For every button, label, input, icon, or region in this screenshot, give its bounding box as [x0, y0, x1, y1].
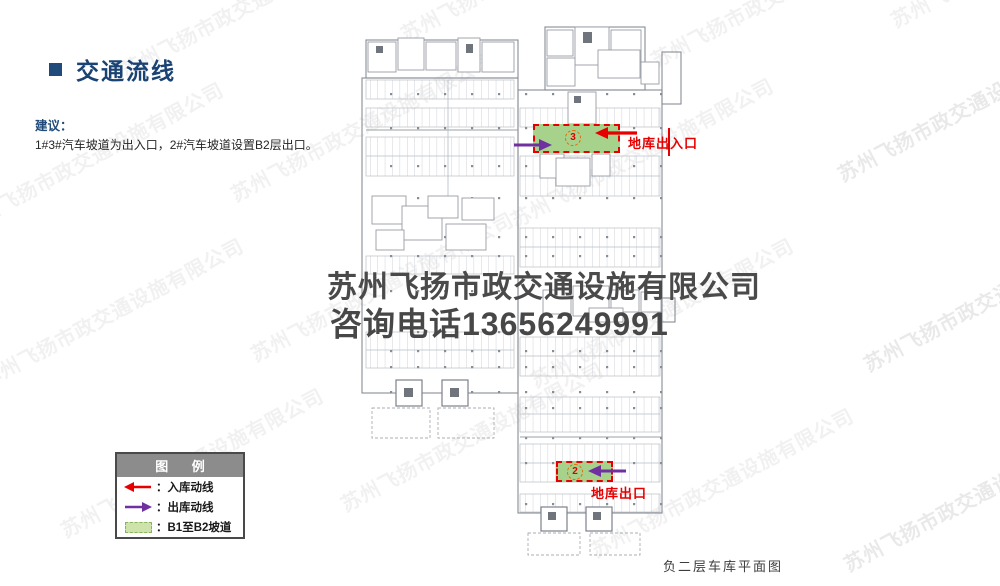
inbound-arrow-icon [123, 481, 153, 493]
outbound-arrow-icon [588, 464, 628, 478]
slide: 苏州飞扬市政交通设施有限公司 苏州飞扬市政交通设施有限公司 苏州飞扬市政交通设施… [0, 0, 1000, 586]
section-bullet-icon [49, 63, 62, 76]
suggestion-text: 1#3#汽车坡道为出入口，2#汽车坡道设置B2层出口。 [35, 136, 318, 153]
ramp-swatch-icon [123, 522, 153, 533]
legend-box: 图 例 ：入库动线 ：出库动线 ：B1至B2坡道 [115, 452, 245, 539]
outbound-arrow-icon [512, 138, 552, 152]
label-garage-entrance-exit: 地库出入口 [628, 133, 698, 152]
label-garage-exit: 地库出口 [591, 483, 647, 502]
legend-title: 图 例 [117, 454, 243, 477]
legend-item-outbound: ：出库动线 [117, 497, 243, 517]
ramp-2-number-badge: 2 [567, 464, 583, 480]
legend-item-label: ：入库动线 [156, 479, 214, 495]
legend-item-label: ：出库动线 [156, 499, 214, 515]
suggestion-label: 建议： [35, 115, 73, 134]
plan-caption: 负二层车库平面图 [663, 556, 783, 575]
page-title: 交通流线 [76, 52, 176, 86]
ramp-3-number-badge: 3 [565, 130, 581, 146]
legend-item-inbound: ：入库动线 [117, 477, 243, 497]
legend-item-ramp: ：B1至B2坡道 [117, 517, 243, 537]
outbound-arrow-icon [123, 501, 153, 513]
legend-item-label: ：B1至B2坡道 [156, 519, 231, 535]
